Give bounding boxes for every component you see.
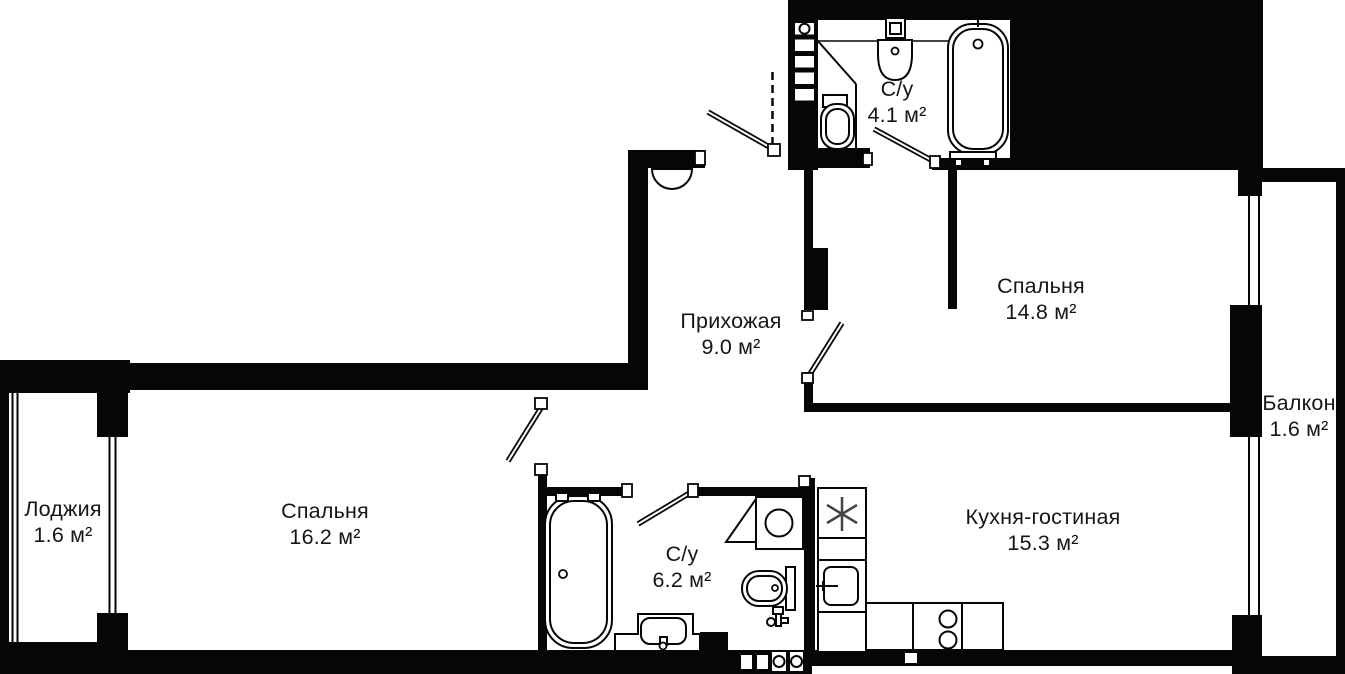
floor-plan: С/у 4.1 м² Спальня 14.8 м² Прихожая 9.0 …: [0, 0, 1345, 674]
toilet-top-icon: [821, 95, 854, 149]
sink-bottom-icon: [615, 614, 700, 650]
room-label-su-bottom: С/у 6.2 м²: [652, 541, 711, 593]
bathtub-top-icon: [948, 12, 1008, 166]
room-name: Спальня: [281, 498, 369, 524]
room-label-su-top: С/у 4.1 м²: [867, 76, 926, 128]
water-tap-icon: [767, 607, 788, 626]
room-area: 14.8 м²: [997, 299, 1085, 325]
kitchen-counter: [866, 603, 1003, 650]
room-area: 4.1 м²: [867, 102, 926, 128]
kitchen-window: [1249, 437, 1259, 615]
room-label-loggia: Лоджия 1.6 м²: [24, 496, 101, 548]
room-area: 6.2 м²: [652, 567, 711, 593]
room-area: 1.6 м²: [1262, 416, 1335, 442]
room-name: С/у: [652, 541, 711, 567]
sink-top-icon: [878, 18, 912, 80]
hallway-shelf-icon: [652, 169, 692, 189]
door-swing-bathroom-top: [874, 129, 933, 161]
loggia-glazing-window: [13, 393, 18, 642]
room-label-hallway: Прихожая 9.0 м²: [680, 308, 781, 360]
room-label-bedroom-top: Спальня 14.8 м²: [997, 273, 1085, 325]
shaft-boxes-bathroom-top: [794, 22, 815, 102]
room-name: Кухня-гостиная: [966, 504, 1121, 530]
entrance-door: [708, 72, 773, 149]
room-area: 1.6 м²: [24, 522, 101, 548]
room-name: Спальня: [997, 273, 1085, 299]
room-label-balcony: Балкон 1.6 м²: [1262, 390, 1335, 442]
washing-machine-icon: [726, 497, 803, 549]
room-name: Прихожая: [680, 308, 781, 334]
room-name: Лоджия: [24, 496, 101, 522]
room-area: 9.0 м²: [680, 334, 781, 360]
door-swing-bathroom-bottom: [638, 491, 693, 524]
toilet-bottom-icon: [742, 567, 795, 610]
room-label-bedroom-left: Спальня 16.2 м²: [281, 498, 369, 550]
room-area: 15.3 м²: [966, 530, 1121, 556]
room-name: Балкон: [1262, 390, 1335, 416]
room-area: 16.2 м²: [281, 524, 369, 550]
door-swing-bedroom-top: [810, 323, 842, 374]
room-name: С/у: [867, 76, 926, 102]
loggia-window: [110, 437, 116, 613]
bedroom-top-window: [1249, 196, 1259, 305]
bathtub-bottom-icon: [545, 493, 612, 648]
room-label-kitchen: Кухня-гостиная 15.3 м²: [966, 504, 1121, 556]
door-swing-bedroom-left: [508, 408, 541, 461]
